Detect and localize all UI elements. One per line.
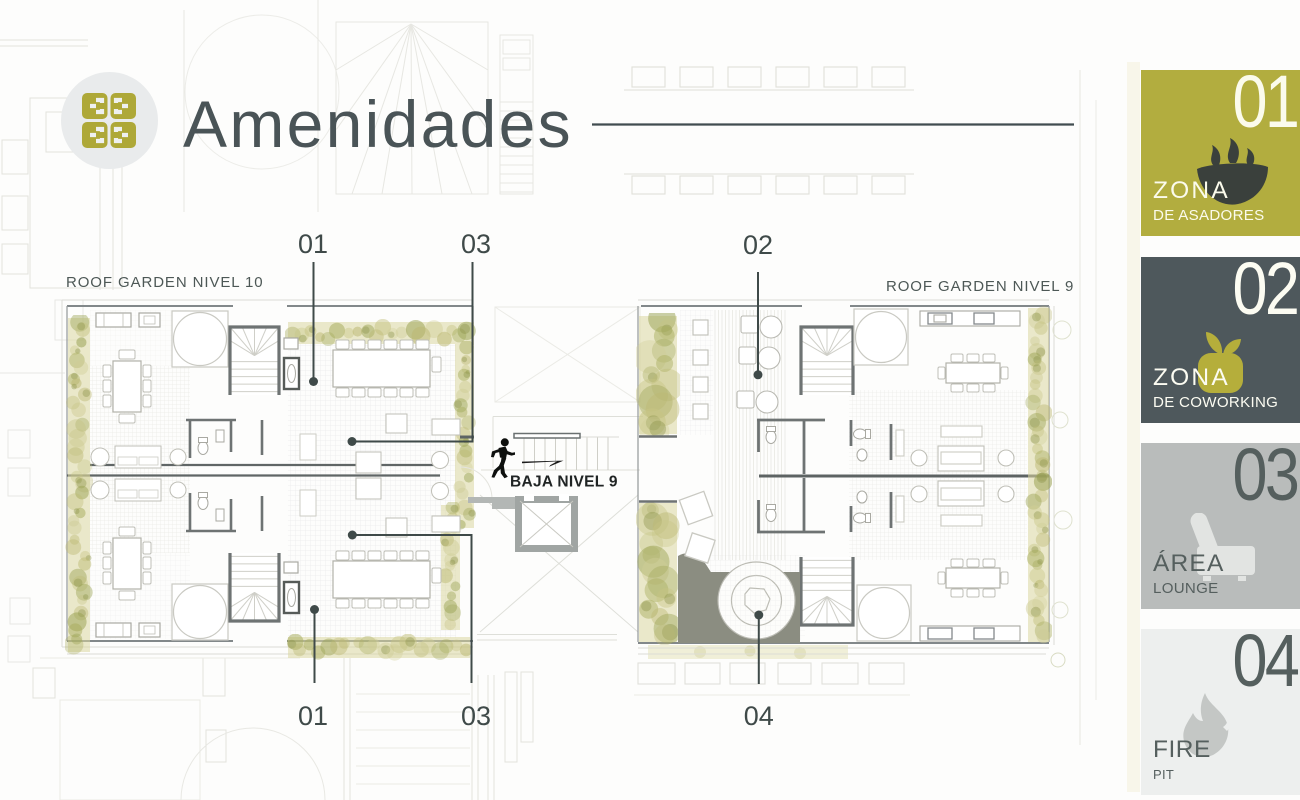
svg-text:04: 04 xyxy=(744,701,774,731)
svg-text:ROOF GARDEN NIVEL 10: ROOF GARDEN NIVEL 10 xyxy=(66,274,264,291)
svg-text:BAJA NIVEL 9: BAJA NIVEL 9 xyxy=(510,474,618,491)
svg-text:ROOF GARDEN NIVEL 9: ROOF GARDEN NIVEL 9 xyxy=(886,278,1074,295)
svg-text:03: 03 xyxy=(461,229,491,259)
svg-text:03: 03 xyxy=(461,701,491,731)
svg-text:02: 02 xyxy=(743,230,773,260)
svg-text:01: 01 xyxy=(298,701,328,731)
svg-text:01: 01 xyxy=(298,229,328,259)
